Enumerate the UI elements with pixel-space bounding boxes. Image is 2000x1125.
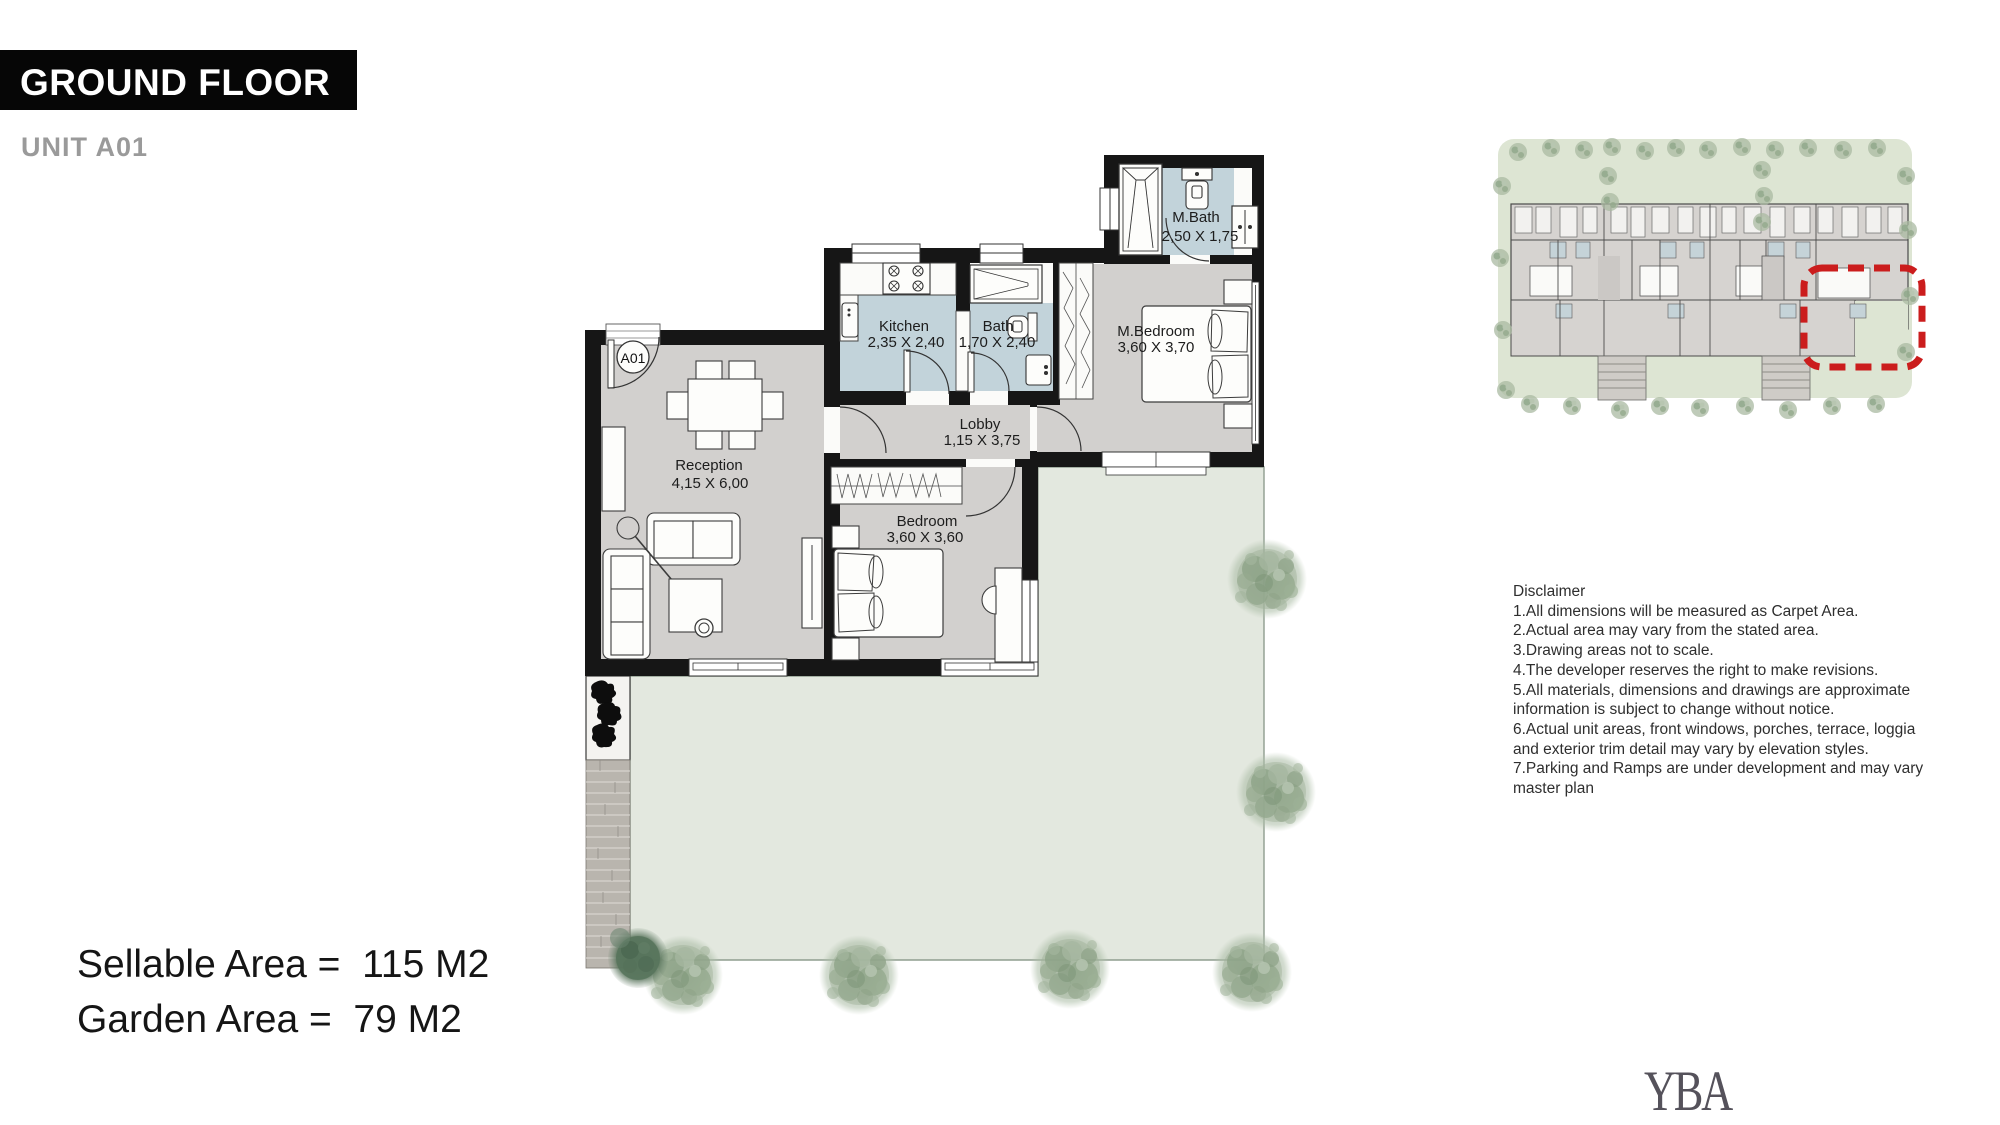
svg-text:2,50 X 1,75: 2,50 X 1,75 bbox=[1162, 228, 1239, 245]
svg-text:A01: A01 bbox=[621, 350, 646, 366]
svg-text:Bath: Bath bbox=[983, 318, 1014, 335]
svg-text:1,15 X 3,75: 1,15 X 3,75 bbox=[944, 432, 1021, 449]
svg-text:1,70 X 2,40: 1,70 X 2,40 bbox=[959, 334, 1036, 351]
svg-text:4,15 X 6,00: 4,15 X 6,00 bbox=[672, 475, 749, 492]
svg-text:2,35 X 2,40: 2,35 X 2,40 bbox=[868, 334, 945, 351]
svg-text:M.Bedroom: M.Bedroom bbox=[1117, 323, 1195, 340]
svg-text:3,60 X 3,70: 3,60 X 3,70 bbox=[1118, 339, 1195, 356]
svg-text:Reception: Reception bbox=[675, 457, 743, 474]
svg-text:Kitchen: Kitchen bbox=[879, 318, 929, 335]
svg-text:Bedroom: Bedroom bbox=[897, 513, 958, 530]
svg-text:3,60 X 3,60: 3,60 X 3,60 bbox=[887, 529, 964, 546]
svg-text:M.Bath: M.Bath bbox=[1172, 209, 1220, 226]
svg-text:Lobby: Lobby bbox=[960, 416, 1001, 433]
